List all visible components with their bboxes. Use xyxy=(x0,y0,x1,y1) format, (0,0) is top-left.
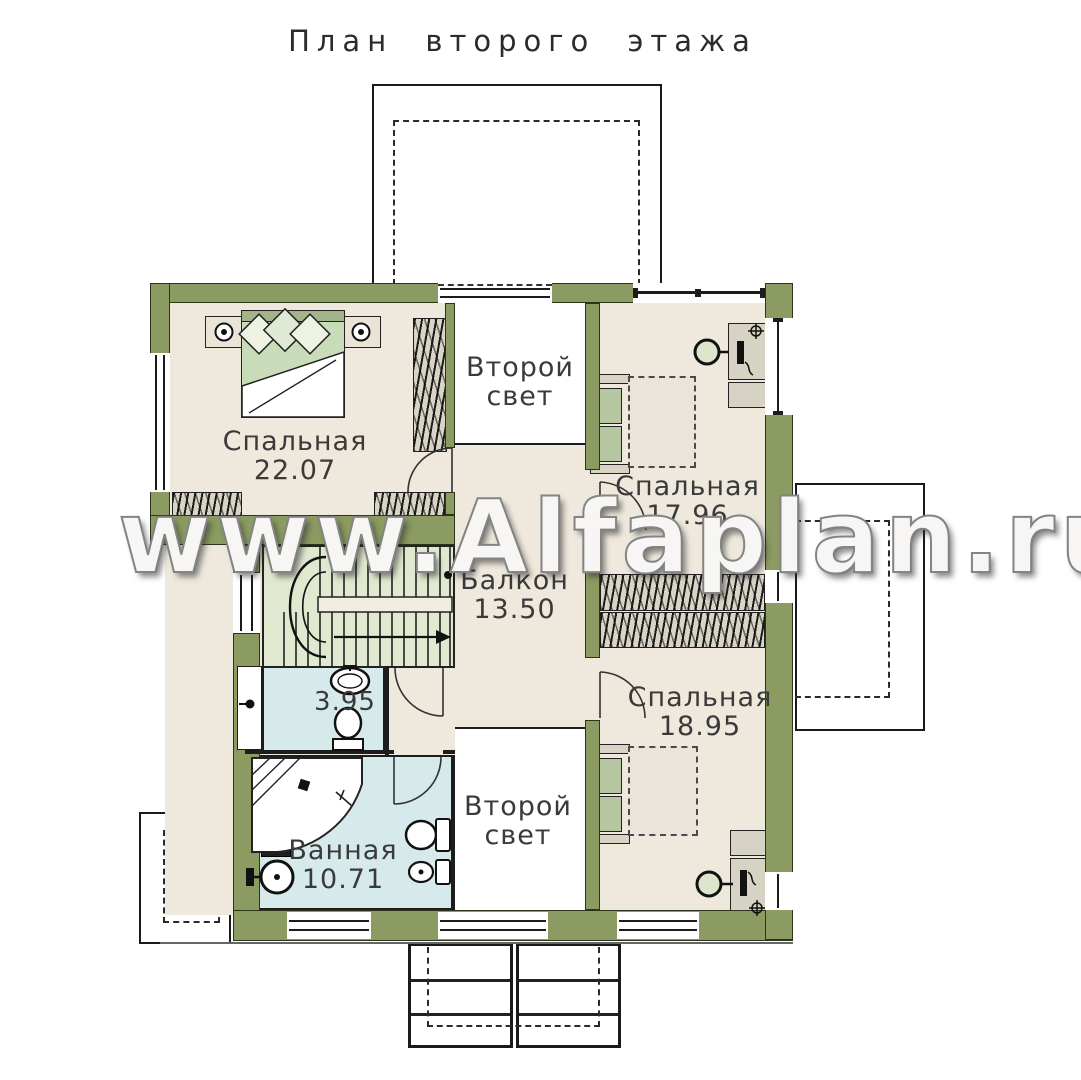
chair-bedroom2 xyxy=(695,340,729,364)
room-label-bath: Ванная10.71 xyxy=(268,836,418,894)
door-wc xyxy=(395,668,443,716)
floor-plan: План второго этажа xyxy=(0,0,1081,1080)
computer-bedroom3 xyxy=(740,870,756,896)
room-label-light-bottom: Второйсвет xyxy=(452,792,584,850)
bed-pillows xyxy=(239,309,330,354)
bed-blanket-fold xyxy=(242,352,344,417)
room-label-wc: 3.95 xyxy=(300,688,390,716)
lamp-icon-right xyxy=(353,324,370,341)
door-bath xyxy=(394,757,441,804)
page-title: План второго этажа xyxy=(0,24,1045,58)
survey-mark-bedroom3 xyxy=(749,900,765,916)
room-label-light-top: Второйсвет xyxy=(455,353,585,411)
lamp-icon-left xyxy=(216,324,233,341)
watermark: www.Alfaplan.ru xyxy=(118,478,1081,596)
chair-bedroom3 xyxy=(697,872,733,896)
closet-door-knob xyxy=(239,700,255,709)
room-label-bedroom-2207: Спальная22.07 xyxy=(195,427,395,485)
computer-bedroom2 xyxy=(737,341,753,375)
survey-mark-bedroom2 xyxy=(748,323,764,339)
room-label-bedroom-1895: Спальная18.95 xyxy=(615,683,785,741)
